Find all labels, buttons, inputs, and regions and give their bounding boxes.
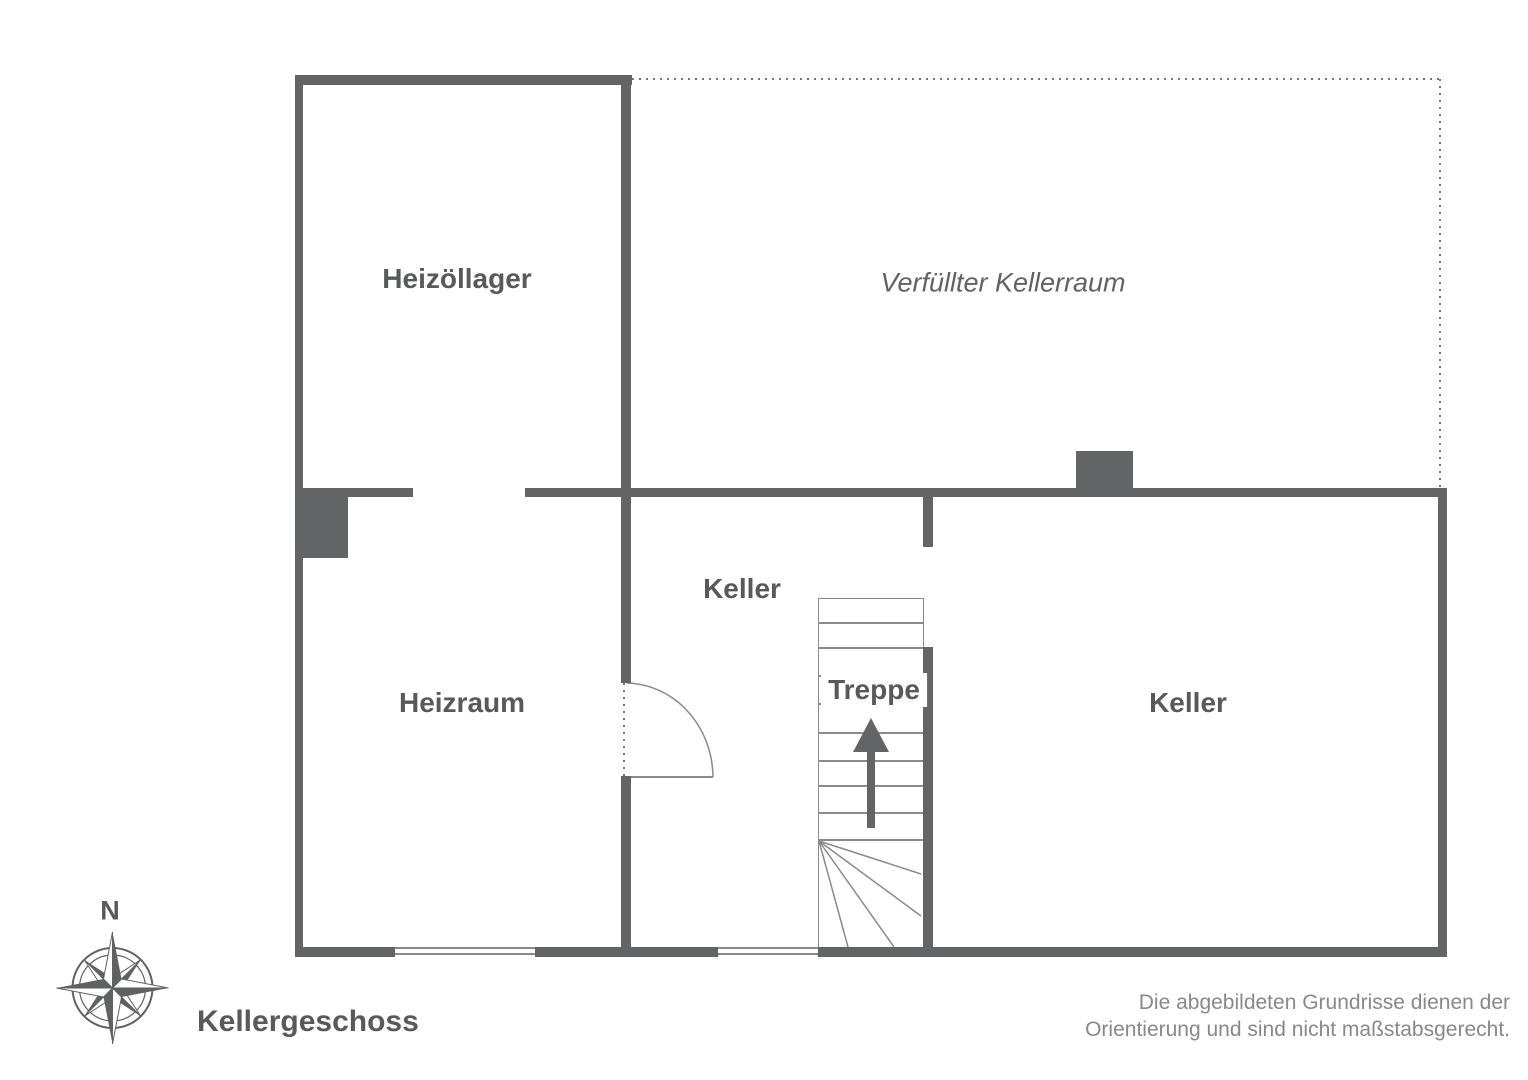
room-label-keller-rechts: Keller [1149,687,1227,719]
door-swing-arc [0,0,1528,1080]
wall-right [1438,488,1447,957]
wall-pillar-left [295,494,348,558]
window-line [718,953,818,955]
disclaimer-line-2: Orientierung und sind nicht maßstabsgere… [1085,1016,1510,1043]
wall-center-upper [621,75,631,683]
disclaimer-line-1: Die abgebildeten Grundrisse dienen der [1085,989,1510,1016]
compass-north-label: N [100,896,120,927]
room-label-verfuellter-kellerraum: Verfüllter Kellerraum [880,268,1125,299]
window-line [395,947,535,949]
floor-title: Kellergeschoss [197,1005,419,1039]
window-line [718,947,818,949]
chimney-block [1076,451,1133,490]
window-line [395,953,535,955]
room-label-treppe: Treppe [821,673,927,707]
room-label-heizraum: Heizraum [399,687,525,719]
wall-top-heizoellager [295,75,632,85]
room-label-heizoellager: Heizöllager [382,263,531,295]
floor-plan: Heizöllager Verfüllter Kellerraum Heizra… [0,0,1528,1080]
compass-rose-icon [52,927,173,1049]
wall-bottom-segment [818,947,1447,957]
wall-bottom-segment [295,947,395,957]
wall-stub-keller-divider [923,497,933,547]
wall-horizontal-main [525,488,1446,497]
disclaimer-text: Die abgebildeten Grundrisse dienen der O… [1085,989,1510,1043]
wall-center-lower [621,776,631,957]
room-label-keller-mitte: Keller [703,573,781,605]
wall-bottom-segment [535,947,718,957]
